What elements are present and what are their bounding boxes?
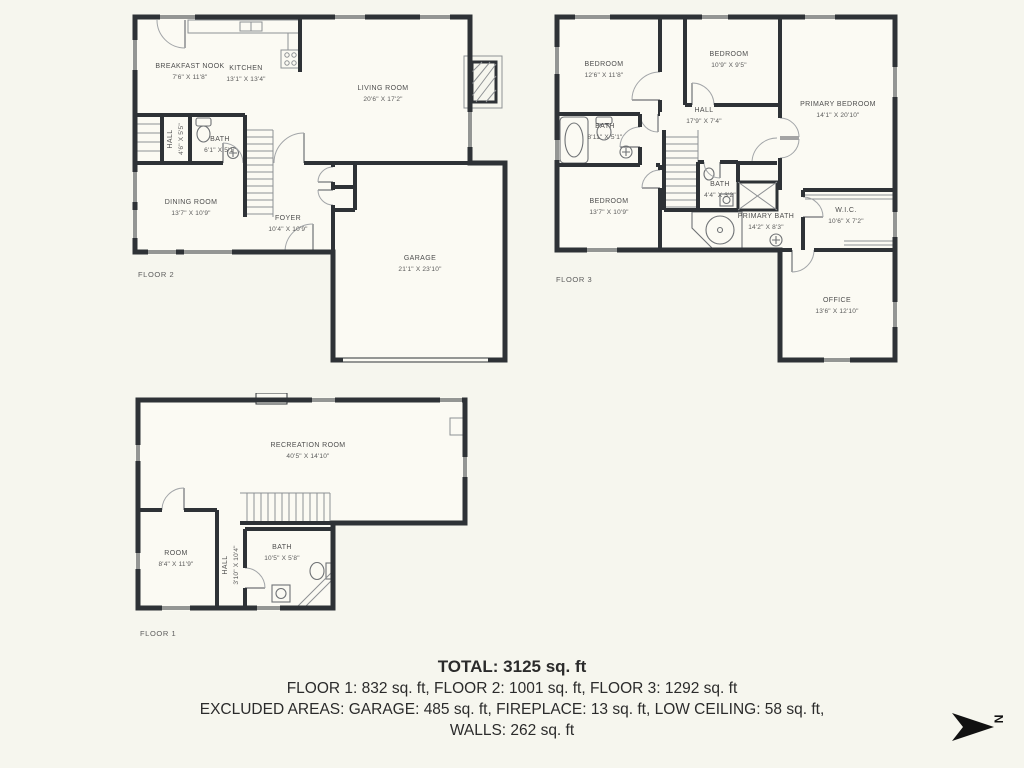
room-label-breakfast-nook: BREAKFAST NOOK 7'6" X 11'8" xyxy=(155,62,224,82)
bathtub-icon xyxy=(560,117,588,163)
room-label-wic: W.I.C. 10'6" X 7'2" xyxy=(828,206,864,226)
garage-door xyxy=(343,357,488,363)
room-label-bath-f2: BATH 6'1" X 5'1" xyxy=(204,135,236,155)
toilet-icon-2 xyxy=(770,234,782,246)
room-label-primary-bath: PRIMARY BATH 14'2" X 8'3" xyxy=(738,212,795,232)
floor2-label: FLOOR 2 xyxy=(138,270,174,279)
north-letter: N xyxy=(991,715,1005,724)
room-label-recreation-room: RECREATION ROOM 40'5" X 14'10" xyxy=(270,441,345,461)
floor2-plan: BREAKFAST NOOK 7'6" X 11'8" KITCHEN 13'1… xyxy=(128,12,512,364)
room-label-living-room: LIVING ROOM 20'6" X 17'2" xyxy=(357,84,408,104)
room-label-bath-f3: BATH 8'11" X 5'1" xyxy=(587,122,622,142)
room-label-bedroom-2: BEDROOM 10'9" X 9'5" xyxy=(710,50,749,70)
area-summary: TOTAL: 3125 sq. ft FLOOR 1: 832 sq. ft, … xyxy=(0,656,1024,741)
toilet-icon xyxy=(310,563,331,580)
walls-area: WALLS: 262 sq. ft xyxy=(0,720,1024,741)
room-label-bedroom-3: BEDROOM 13'7" X 10'9" xyxy=(589,197,628,217)
room-label-kitchen: KITCHEN 13'1" X 13'4" xyxy=(226,64,265,84)
room-label-room: ROOM 8'4" X 11'9" xyxy=(158,549,193,569)
floor3-label: FLOOR 3 xyxy=(556,275,592,284)
room-label-primary-bedroom: PRIMARY BEDROOM 14'1" X 20'10" xyxy=(800,100,876,120)
floor3-plan: BEDROOM 12'6" X 11'8" BEDROOM 10'9" X 9'… xyxy=(552,12,900,372)
total-area: TOTAL: 3125 sq. ft xyxy=(0,656,1024,678)
room-label-garage: GARAGE 21'1" X 23'10" xyxy=(398,254,441,274)
room-label-bedroom-1: BEDROOM 12'6" X 11'8" xyxy=(585,60,624,80)
north-arrow: N xyxy=(950,710,1020,756)
room-label-foyer: FOYER 10'4" X 10'9" xyxy=(268,214,307,234)
room-label-hall-f1: HALL 3'10" X 10'4" xyxy=(221,545,241,584)
floor1-plan: RECREATION ROOM 40'5" X 14'10" ROOM 8'4"… xyxy=(132,393,472,641)
floor1-label: FLOOR 1 xyxy=(140,629,176,638)
sink-icon xyxy=(272,585,290,602)
floor1-plan-drawing xyxy=(132,393,472,641)
floor-areas: FLOOR 1: 832 sq. ft, FLOOR 2: 1001 sq. f… xyxy=(0,678,1024,699)
excluded-areas: EXCLUDED AREAS: GARAGE: 485 sq. ft, FIRE… xyxy=(0,699,1024,720)
room-label-dining-room: DINING ROOM 13'7" X 10'9" xyxy=(165,198,218,218)
floor-plan-page: BREAKFAST NOOK 7'6" X 11'8" KITCHEN 13'1… xyxy=(0,0,1024,768)
room-label-bath-f1: BATH 10'5" X 5'8" xyxy=(264,543,300,563)
room-label-hall-f2: HALL 4'6" X 5'5" xyxy=(166,123,186,155)
room-label-office: OFFICE 13'6" X 12'10" xyxy=(815,296,858,316)
room-label-small-bath: BATH 4'4" X 3'2" xyxy=(704,180,736,200)
sink-icon xyxy=(620,146,632,158)
room-label-hall-f3: HALL 17'9" X 7'4" xyxy=(686,106,722,126)
